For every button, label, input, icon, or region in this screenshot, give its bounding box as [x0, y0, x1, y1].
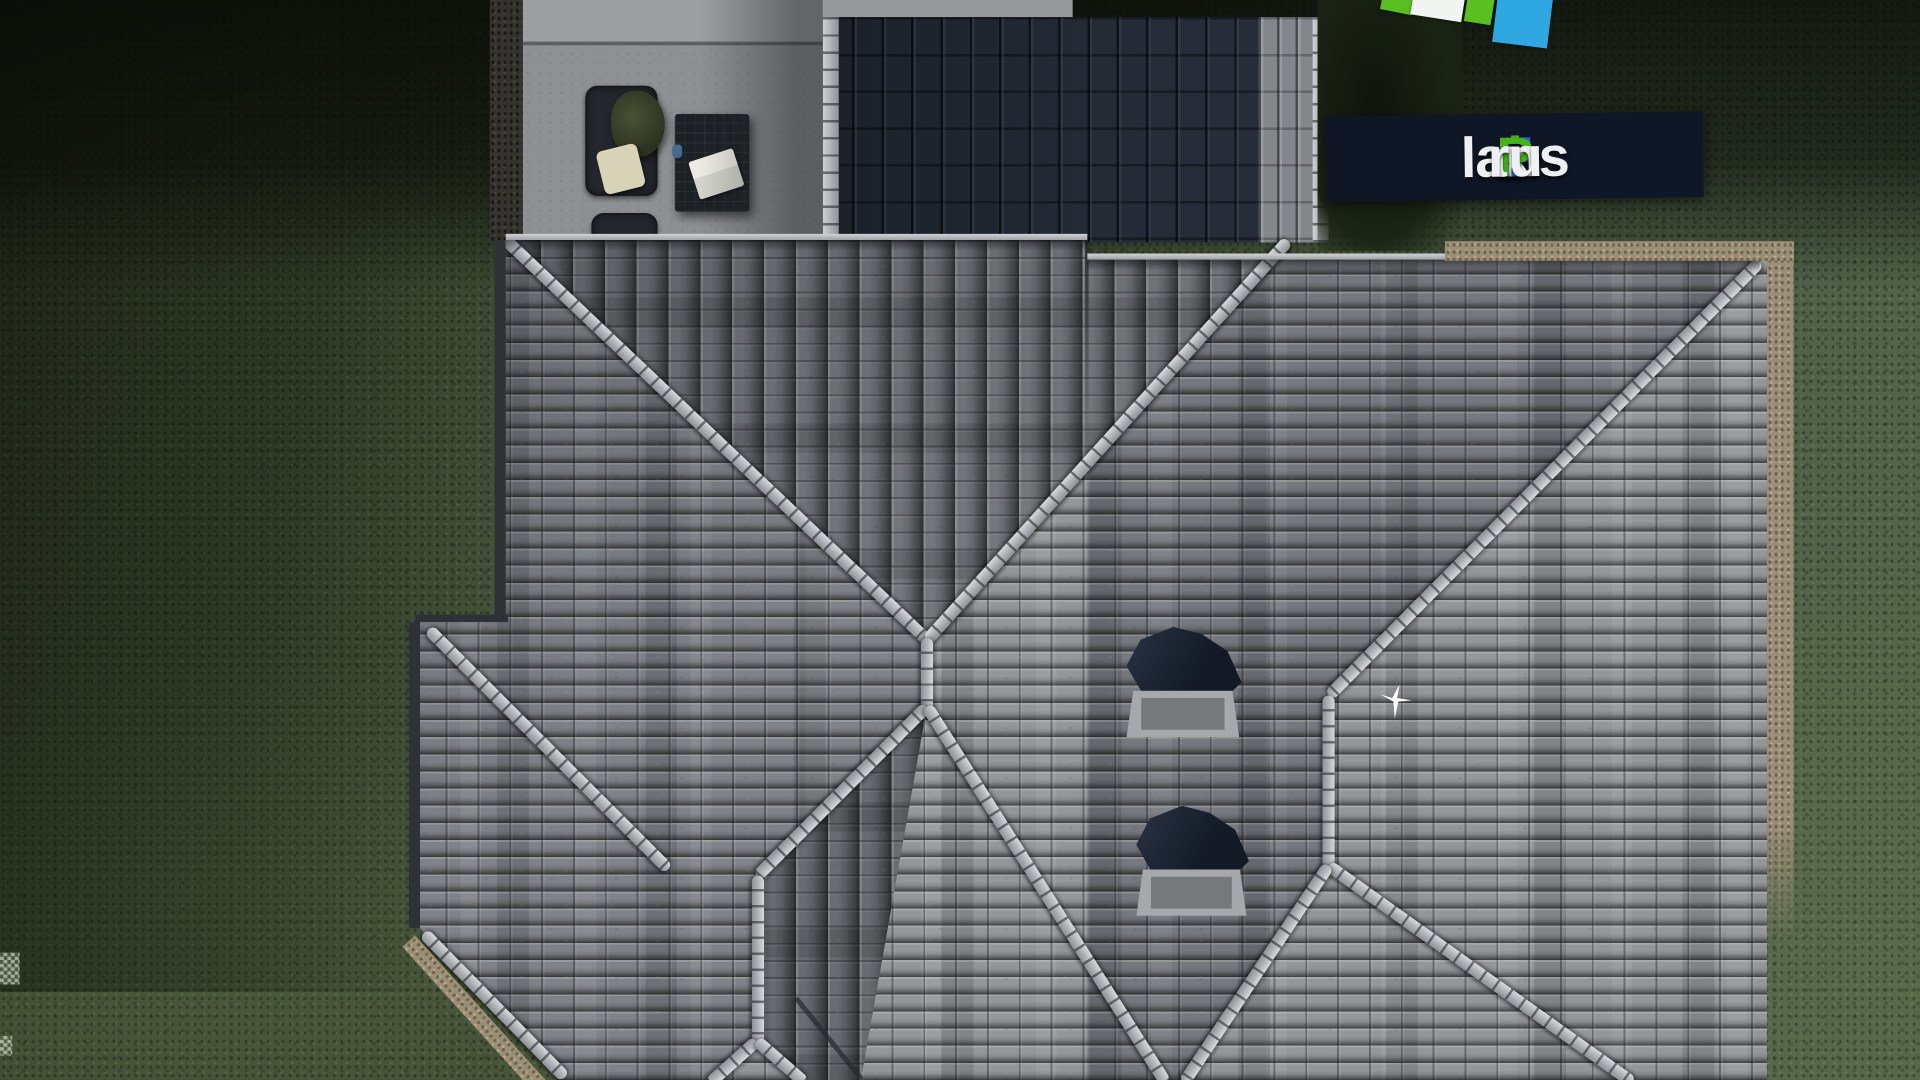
- gravel-edge-top-right: [1445, 241, 1794, 261]
- ridge-vertical-lower: [752, 876, 764, 1047]
- right-ridge-vertical: [1322, 696, 1334, 872]
- mulch-border: [490, 0, 524, 242]
- render-canvas: F i x P lans . ru: [0, 0, 1920, 1080]
- roof-window-upper: [1124, 627, 1242, 740]
- ridge-vertical-upper: [921, 638, 933, 711]
- roof-window-glass: [1124, 627, 1242, 698]
- terrace: [523, 0, 823, 242]
- eave-shadow-top: [506, 240, 1088, 251]
- roof-window-frame-inner: [1141, 698, 1224, 730]
- north-roof-dark: [823, 17, 1329, 242]
- logo-mark-square-green-2: [1464, 0, 1495, 25]
- logo-mark-square-blue: [1492, 0, 1553, 48]
- roof-window-frame-2: [1136, 869, 1246, 916]
- ridge-cap-column-west: [823, 17, 839, 242]
- table-item: [672, 144, 682, 157]
- fascia-left-edge: [495, 240, 506, 622]
- gravel-edge-right: [1767, 257, 1794, 943]
- garden-trellis-small: [0, 1036, 12, 1056]
- watermark-banner: F i x P lans . ru: [1326, 111, 1704, 202]
- garden-trellis: [0, 953, 20, 985]
- eave-shadow-top-right: [1087, 260, 1759, 271]
- fascia-wing-left: [409, 622, 420, 928]
- logo-text-ru: ru: [1487, 114, 1542, 200]
- fascia-wing-top: [415, 615, 508, 622]
- north-roof-light-plane: [1259, 17, 1315, 242]
- roof-window-glass-2: [1134, 806, 1249, 877]
- flying-bird-icon: [1376, 683, 1415, 720]
- roof-window-frame: [1127, 691, 1240, 738]
- roof-window-frame-inner-2: [1151, 877, 1232, 909]
- roof-window-lower: [1134, 806, 1249, 919]
- terrace-shadow: [700, 0, 822, 242]
